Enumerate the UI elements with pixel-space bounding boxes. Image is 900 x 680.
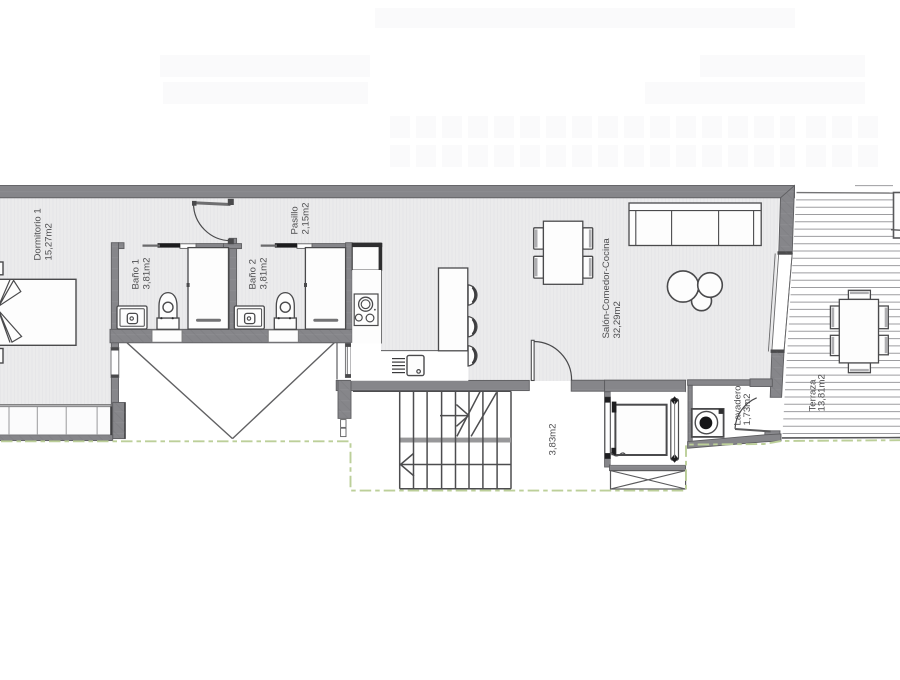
svg-text:Baño 2: Baño 2: [248, 259, 259, 289]
svg-text:2,15m2: 2,15m2: [301, 203, 312, 235]
svg-text:3,83m2: 3,83m2: [548, 424, 559, 456]
svg-text:Baño 1: Baño 1: [131, 259, 142, 289]
svg-text:3,81m2: 3,81m2: [259, 258, 270, 290]
svg-text:32,29m2: 32,29m2: [612, 301, 623, 338]
svg-text:Salón-Comedor-Cocina: Salón-Comedor-Cocina: [601, 238, 612, 339]
svg-text:Pasillo: Pasillo: [290, 206, 301, 234]
svg-text:1,73m2: 1,73m2: [742, 394, 753, 426]
svg-text:13,81m2: 13,81m2: [817, 374, 828, 411]
svg-text:Dormitorio 1: Dormitorio 1: [33, 208, 44, 260]
svg-text:3,81m2: 3,81m2: [142, 258, 153, 290]
svg-text:15,27m2: 15,27m2: [44, 223, 55, 260]
